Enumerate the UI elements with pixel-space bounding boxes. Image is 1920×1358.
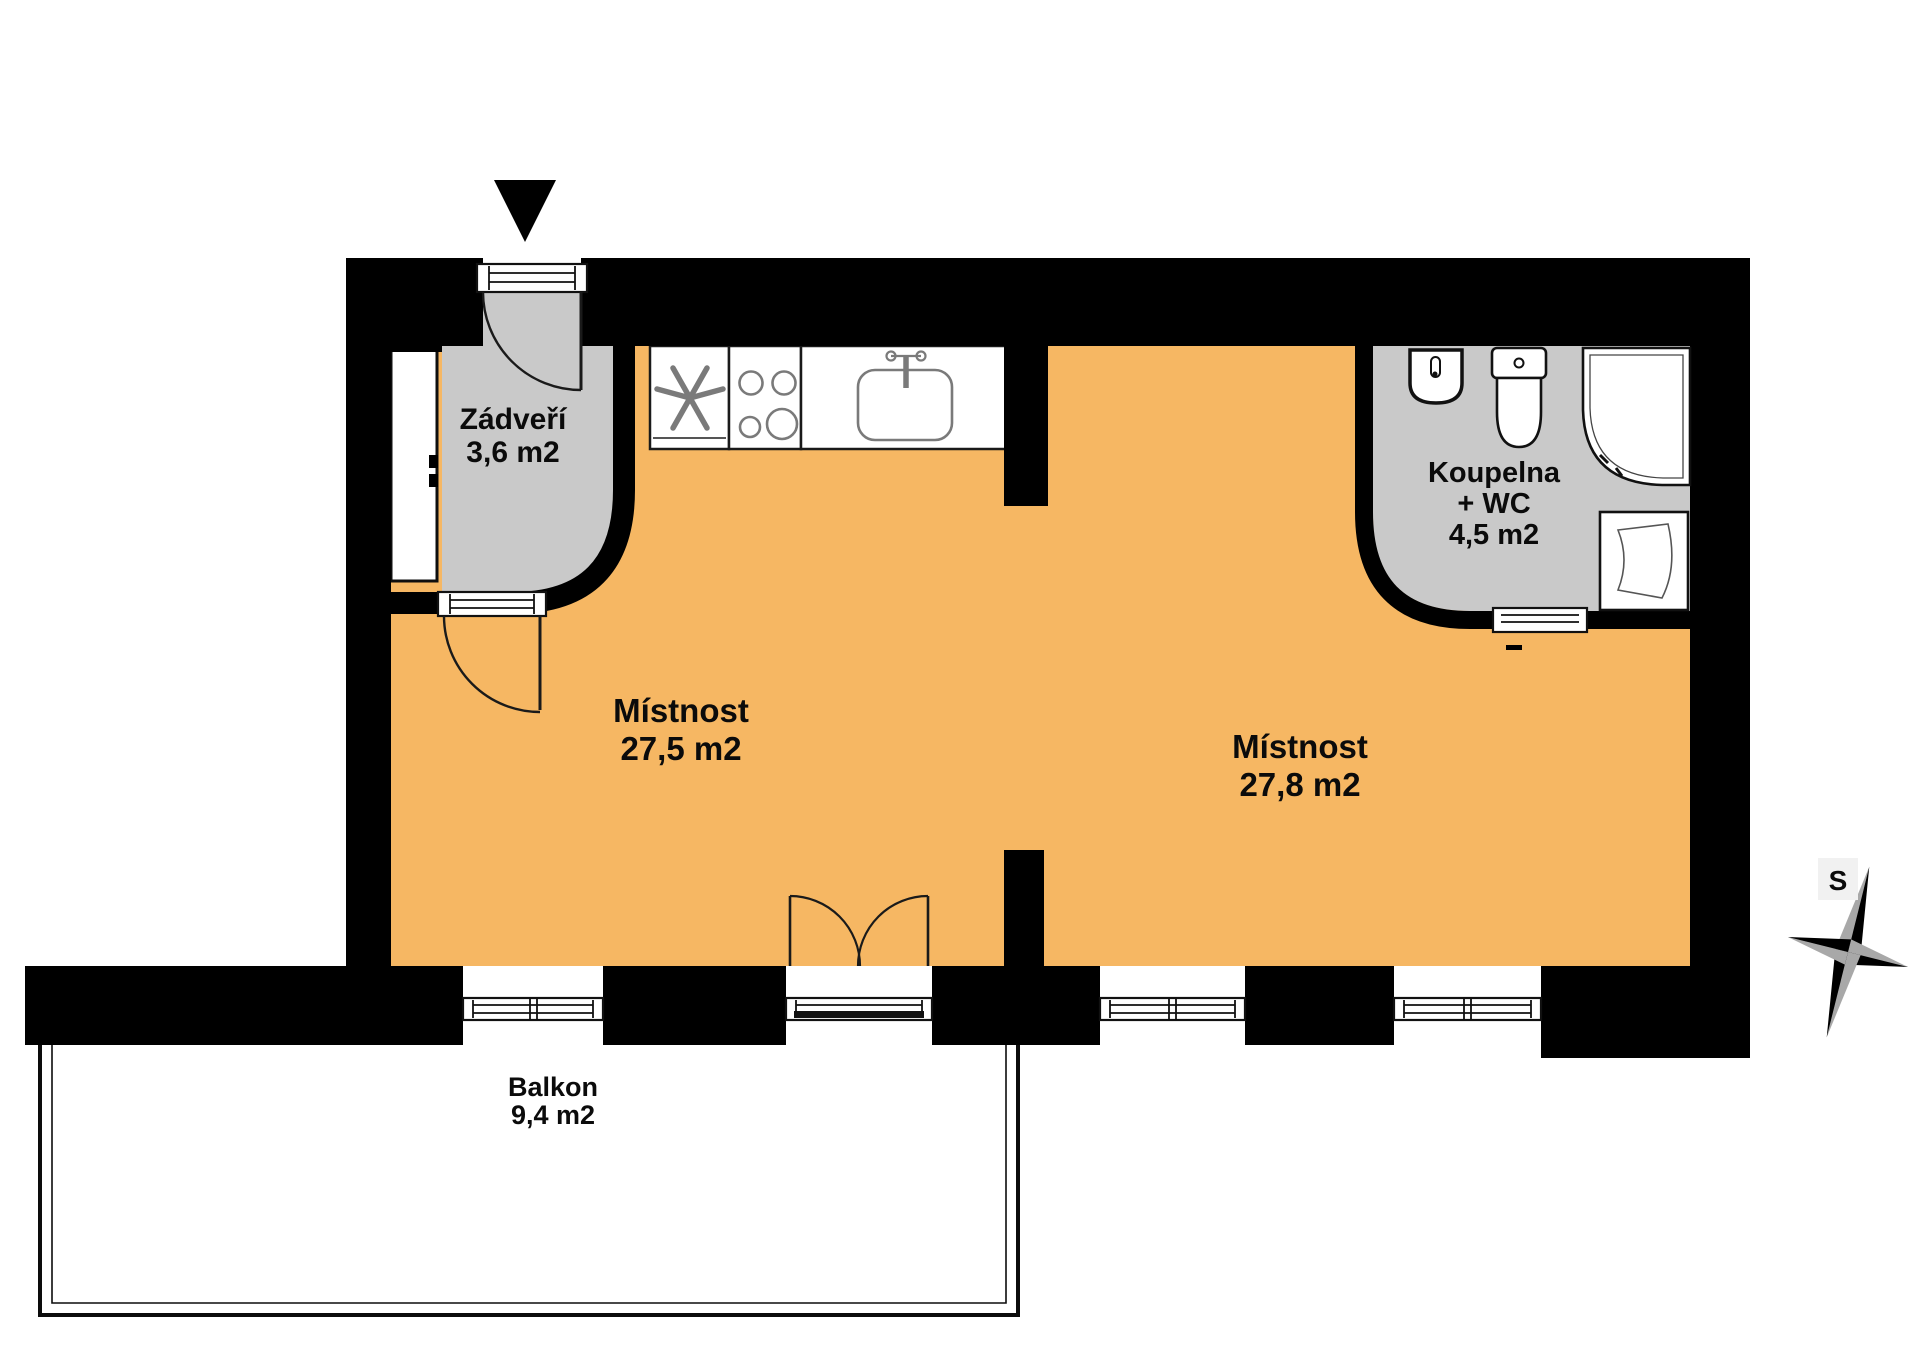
wall-left [346, 258, 391, 1045]
label-zadveri-name: Zádveří [460, 403, 568, 436]
floor-plan-canvas: Zádveří 3,6 m2 Místnost 27,5 m2 Místnost… [0, 0, 1920, 1358]
entrance-arrow-icon [494, 180, 556, 242]
label-mistnost-left-name: Místnost [613, 692, 749, 729]
window-c [1394, 998, 1541, 1020]
label-balkon-name: Balkon [508, 1072, 598, 1102]
label-mistnost-right-name: Místnost [1232, 728, 1368, 765]
label-koupelna-name: Koupelna [1428, 457, 1561, 489]
kitchen-counter [650, 346, 1008, 449]
wardrobe-icon [391, 350, 438, 581]
compass: S [1767, 852, 1920, 1053]
label-koupelna-area: 4,5 m2 [1449, 519, 1539, 551]
window-b [1100, 998, 1245, 1020]
label-mistnost-left-area: 27,5 m2 [620, 730, 741, 767]
wall-bottom-corner [1541, 966, 1750, 1058]
floor-plan-page: Zádveří 3,6 m2 Místnost 27,5 m2 Místnost… [0, 0, 1920, 1358]
toilet-icon [1492, 348, 1546, 447]
label-mistnost-right-area: 27,8 m2 [1239, 766, 1360, 803]
wall-right [1690, 258, 1750, 1058]
label-zadveri-area: 3,6 m2 [466, 436, 559, 469]
wall-bottom-1 [25, 966, 463, 1045]
stove-unit [729, 346, 801, 449]
label-koupelna-wc: + WC [1457, 488, 1530, 520]
wall-stub-top [1004, 346, 1048, 506]
window-a [463, 998, 603, 1020]
wall-bottom-4 [1245, 966, 1394, 1045]
washbasin-icon [1410, 350, 1462, 403]
wall-stub-bottom [1004, 850, 1044, 966]
wall-bottom-3 [932, 966, 1100, 1045]
wall-bottom-2 [603, 966, 786, 1045]
label-balkon-area: 9,4 m2 [511, 1100, 595, 1130]
washing-machine-icon [1600, 512, 1688, 610]
wall-corner-block [346, 258, 442, 352]
compass-label: S [1829, 865, 1848, 896]
